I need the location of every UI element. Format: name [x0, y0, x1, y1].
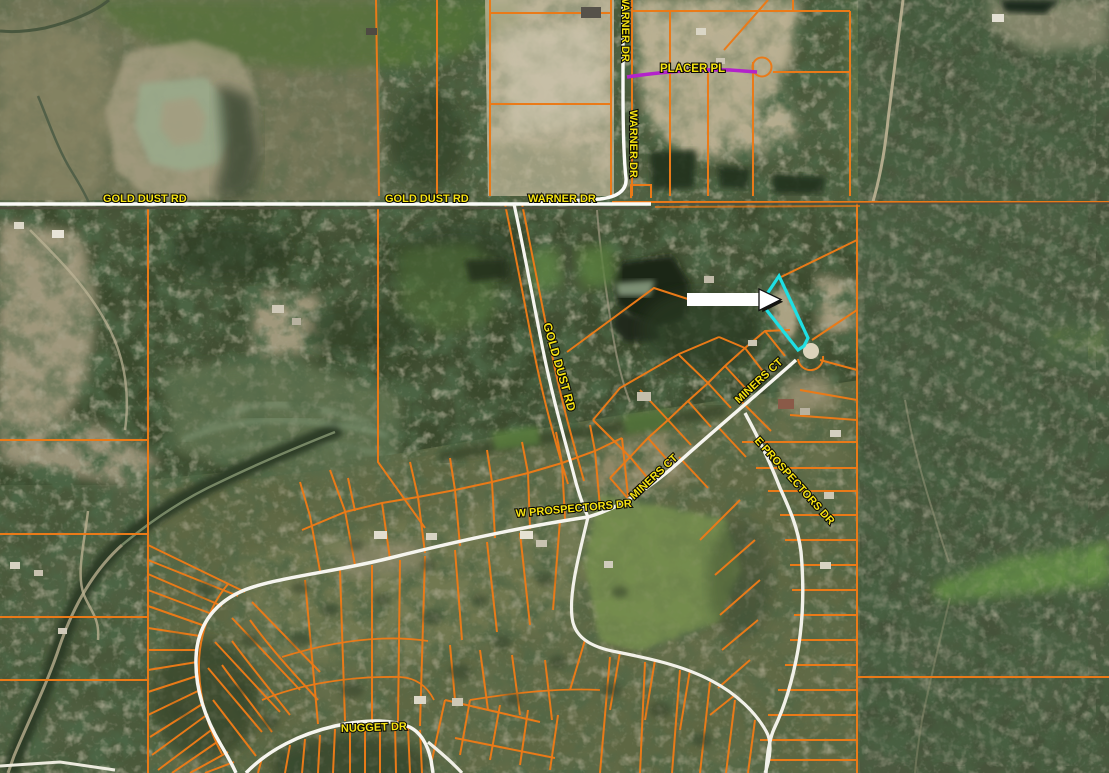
svg-text:WARNER DR: WARNER DR [627, 110, 639, 178]
svg-text:NUGGET DR: NUGGET DR [341, 721, 407, 735]
svg-text:WARNER DR: WARNER DR [528, 193, 596, 205]
svg-text:PLACER PL: PLACER PL [660, 63, 725, 75]
svg-text:GOLD DUST RD: GOLD DUST RD [385, 193, 469, 205]
svg-text:GOLD DUST RD: GOLD DUST RD [103, 193, 187, 205]
svg-text:WARNER DR: WARNER DR [619, 0, 631, 62]
